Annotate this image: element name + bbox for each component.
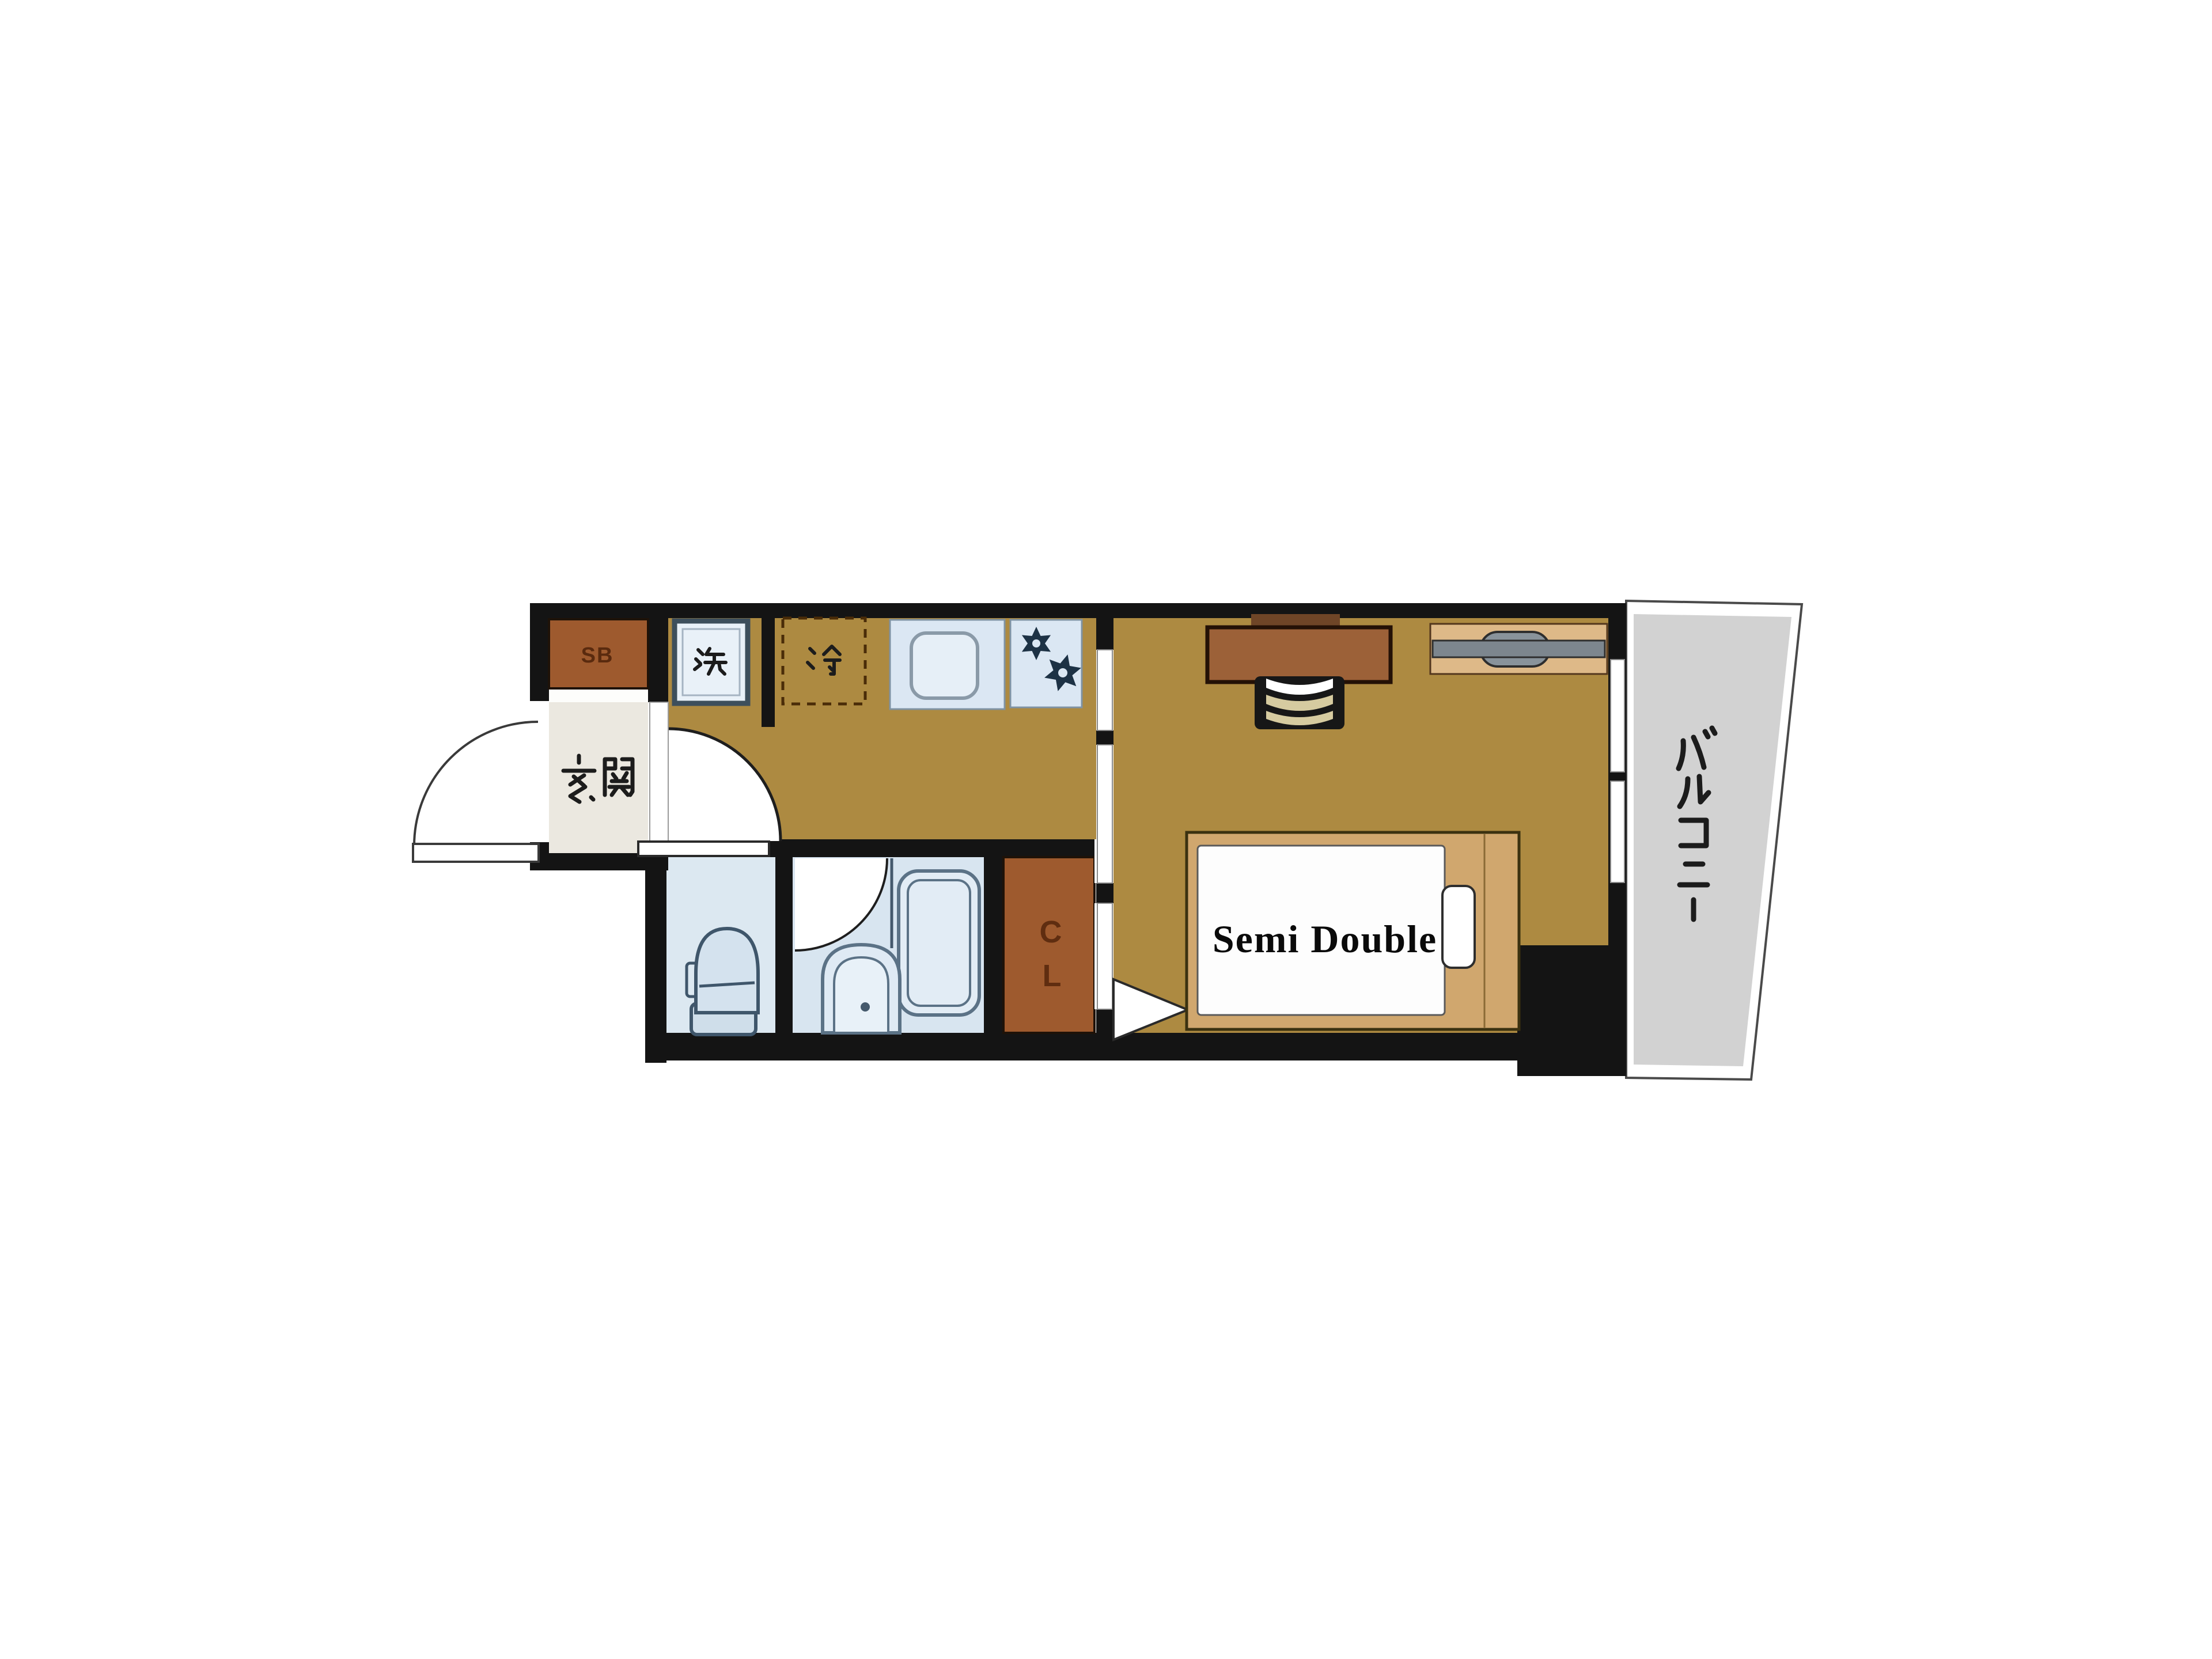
- svg-text:Semi Double: Semi Double: [1213, 917, 1437, 961]
- svg-text:C: C: [1040, 915, 1062, 949]
- svg-text:SB: SB: [581, 643, 614, 668]
- svg-text:L: L: [1043, 959, 1062, 993]
